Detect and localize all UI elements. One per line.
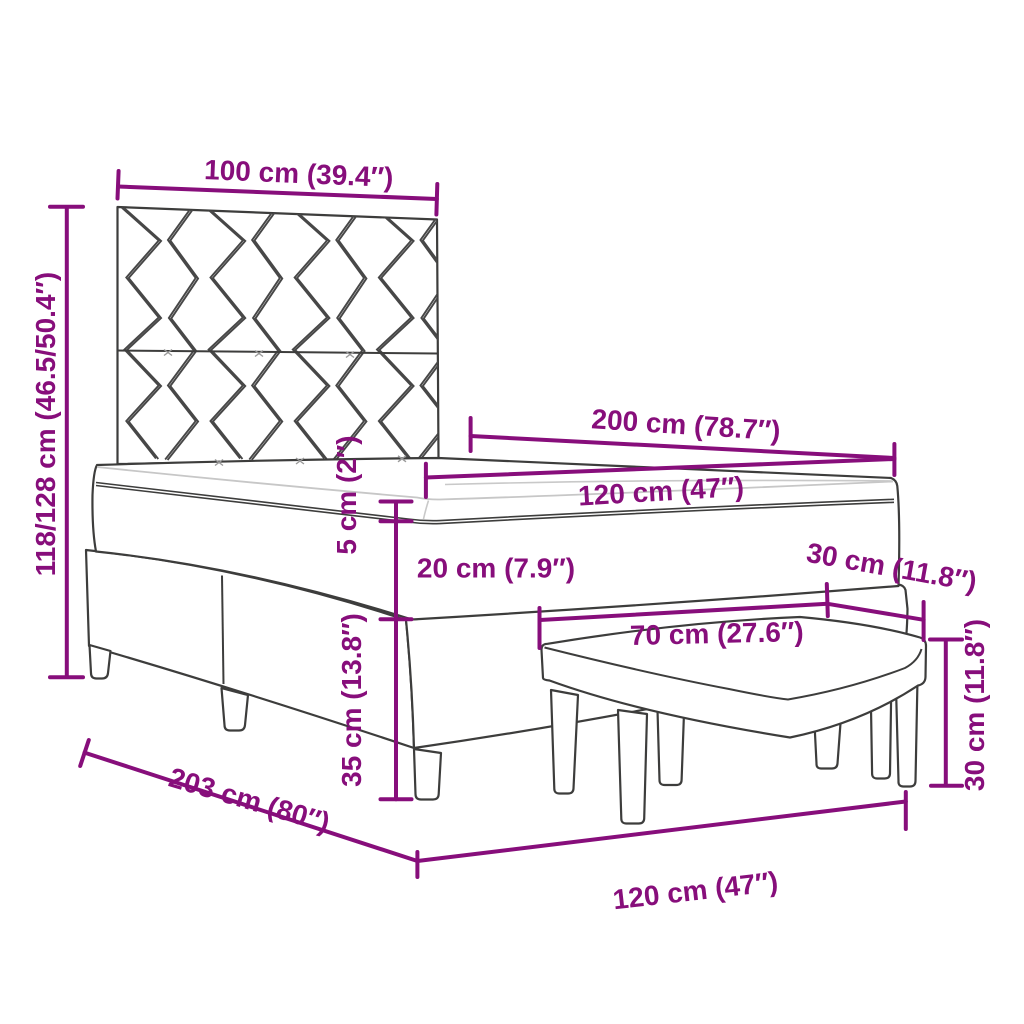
svg-text:120 cm (47″): 120 cm (47″) (611, 866, 779, 916)
svg-text:35 cm (13.8″): 35 cm (13.8″) (336, 613, 367, 787)
svg-text:30 cm (11.8″): 30 cm (11.8″) (959, 619, 990, 791)
svg-text:70 cm (27.6″): 70 cm (27.6″) (630, 616, 804, 651)
svg-text:5 cm (2″): 5 cm (2″) (331, 435, 362, 554)
svg-text:200 cm (78.7″): 200 cm (78.7″) (591, 403, 782, 446)
svg-text:100 cm (39.4″): 100 cm (39.4″) (204, 154, 394, 193)
svg-text:203 cm (80″): 203 cm (80″) (165, 762, 333, 839)
svg-text:118/128 cm (46.5/50.4″): 118/128 cm (46.5/50.4″) (30, 272, 61, 577)
svg-text:20 cm (7.9″): 20 cm (7.9″) (417, 553, 575, 584)
